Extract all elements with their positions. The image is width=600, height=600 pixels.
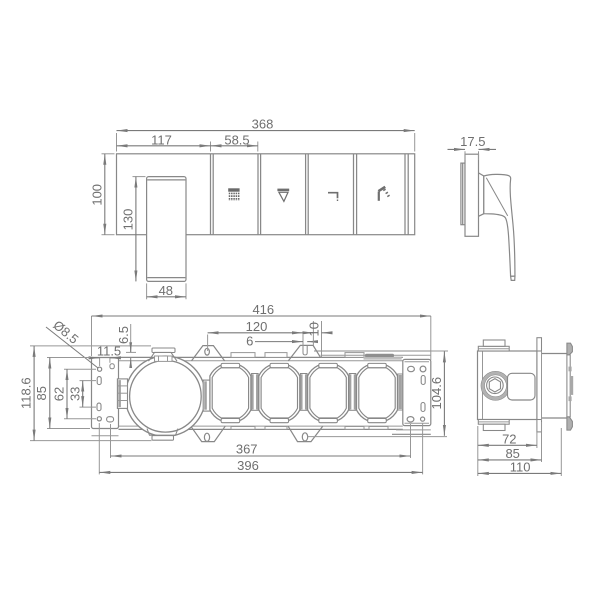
svg-text:33: 33 [67, 387, 82, 401]
svg-text:110: 110 [510, 460, 531, 475]
svg-text:118.6: 118.6 [18, 377, 33, 409]
svg-text:416: 416 [252, 302, 274, 317]
svg-text:48: 48 [159, 283, 173, 298]
svg-text:396: 396 [237, 458, 259, 473]
svg-text:117: 117 [151, 133, 172, 148]
svg-text:130: 130 [120, 209, 135, 231]
svg-text:6: 6 [246, 333, 253, 348]
svg-text:104.6: 104.6 [429, 377, 444, 410]
svg-text:367: 367 [236, 442, 258, 457]
svg-text:368: 368 [252, 116, 274, 131]
svg-text:72: 72 [502, 431, 516, 446]
svg-text:6.5: 6.5 [116, 326, 131, 344]
svg-text:11.5: 11.5 [97, 343, 121, 358]
svg-text:120: 120 [246, 319, 268, 334]
svg-text:58.5: 58.5 [224, 133, 249, 148]
svg-text:85: 85 [34, 386, 49, 400]
svg-text:62: 62 [52, 387, 67, 401]
svg-text:100: 100 [89, 184, 104, 206]
svg-text:17.5: 17.5 [460, 134, 485, 149]
svg-text:10: 10 [307, 322, 322, 336]
